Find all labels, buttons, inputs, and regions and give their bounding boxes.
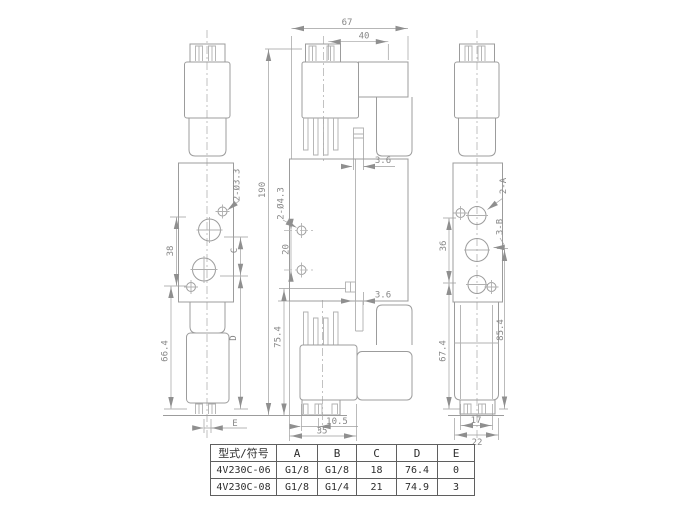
front-view xyxy=(284,36,412,428)
col-header-e: E xyxy=(438,445,475,462)
col-header-a: A xyxy=(277,445,318,462)
cell-c: 18 xyxy=(357,462,397,479)
dim-h85-4: 85.4 xyxy=(496,319,506,341)
col-header-d: D xyxy=(397,445,438,462)
dim-h38: 38 xyxy=(166,246,176,257)
cell-b: G1/4 xyxy=(318,479,357,496)
dim-h36: 36 xyxy=(439,241,449,252)
dim-ports-a: 2-A xyxy=(499,177,509,194)
dim-w35: 35 xyxy=(317,427,328,437)
front-view-dimensions: 67 40 190 20 2-Ø4.3 3.6 3.6 75.4 10.5 xyxy=(258,18,408,441)
spec-table-row: 4V230C-08 G1/8 G1/4 21 74.9 3 xyxy=(211,479,475,496)
dim-h75-4: 75.4 xyxy=(274,326,284,348)
cell-e: 3 xyxy=(438,479,475,496)
cell-a: G1/8 xyxy=(277,462,318,479)
spec-table: 型式/符号 A B C D E 4V230C-06 G1/8 G1/8 18 7… xyxy=(210,444,475,496)
cell-b: G1/8 xyxy=(318,462,357,479)
dim-w17: 17 xyxy=(471,416,482,426)
valve-technical-drawing: 2-Ø3.3 38 66.4 C D E xyxy=(0,0,693,523)
dim-ports-b: 3-B xyxy=(496,219,506,235)
cell-d: 74.9 xyxy=(397,479,438,496)
left-side-view xyxy=(163,30,347,441)
cell-d: 76.4 xyxy=(397,462,438,479)
spec-table-row: 4V230C-06 G1/8 G1/8 18 76.4 0 xyxy=(211,462,475,479)
dim-holes-side: 2-Ø3.3 xyxy=(232,169,243,202)
cell-a: G1/8 xyxy=(277,479,318,496)
col-header-c: C xyxy=(357,445,397,462)
dim-gap-bottom: 3.6 xyxy=(375,291,391,301)
dim-c: C xyxy=(230,248,240,253)
cell-model: 4V230C-08 xyxy=(211,479,277,496)
cell-e: 0 xyxy=(438,462,475,479)
col-header-model: 型式/符号 xyxy=(211,445,277,462)
dim-e: E xyxy=(232,419,237,429)
cell-model: 4V230C-06 xyxy=(211,462,277,479)
dim-d: D xyxy=(229,335,239,340)
left-view-dimensions: 2-Ø3.3 38 66.4 C D E xyxy=(161,169,249,433)
dim-h66-4: 66.4 xyxy=(161,340,171,362)
dim-w10-5: 10.5 xyxy=(326,417,348,427)
dim-w40: 40 xyxy=(359,32,370,42)
dim-h190: 190 xyxy=(258,182,268,198)
spec-table-header-row: 型式/符号 A B C D E xyxy=(211,445,475,462)
dim-w67: 67 xyxy=(342,18,353,28)
cell-c: 21 xyxy=(357,479,397,496)
dim-holes-front: 2-Ø4.3 xyxy=(276,187,287,220)
dim-h67-4: 67.4 xyxy=(439,340,449,362)
dim-gap-top: 3.6 xyxy=(375,156,391,166)
col-header-b: B xyxy=(318,445,357,462)
dim-h20: 20 xyxy=(282,244,292,255)
